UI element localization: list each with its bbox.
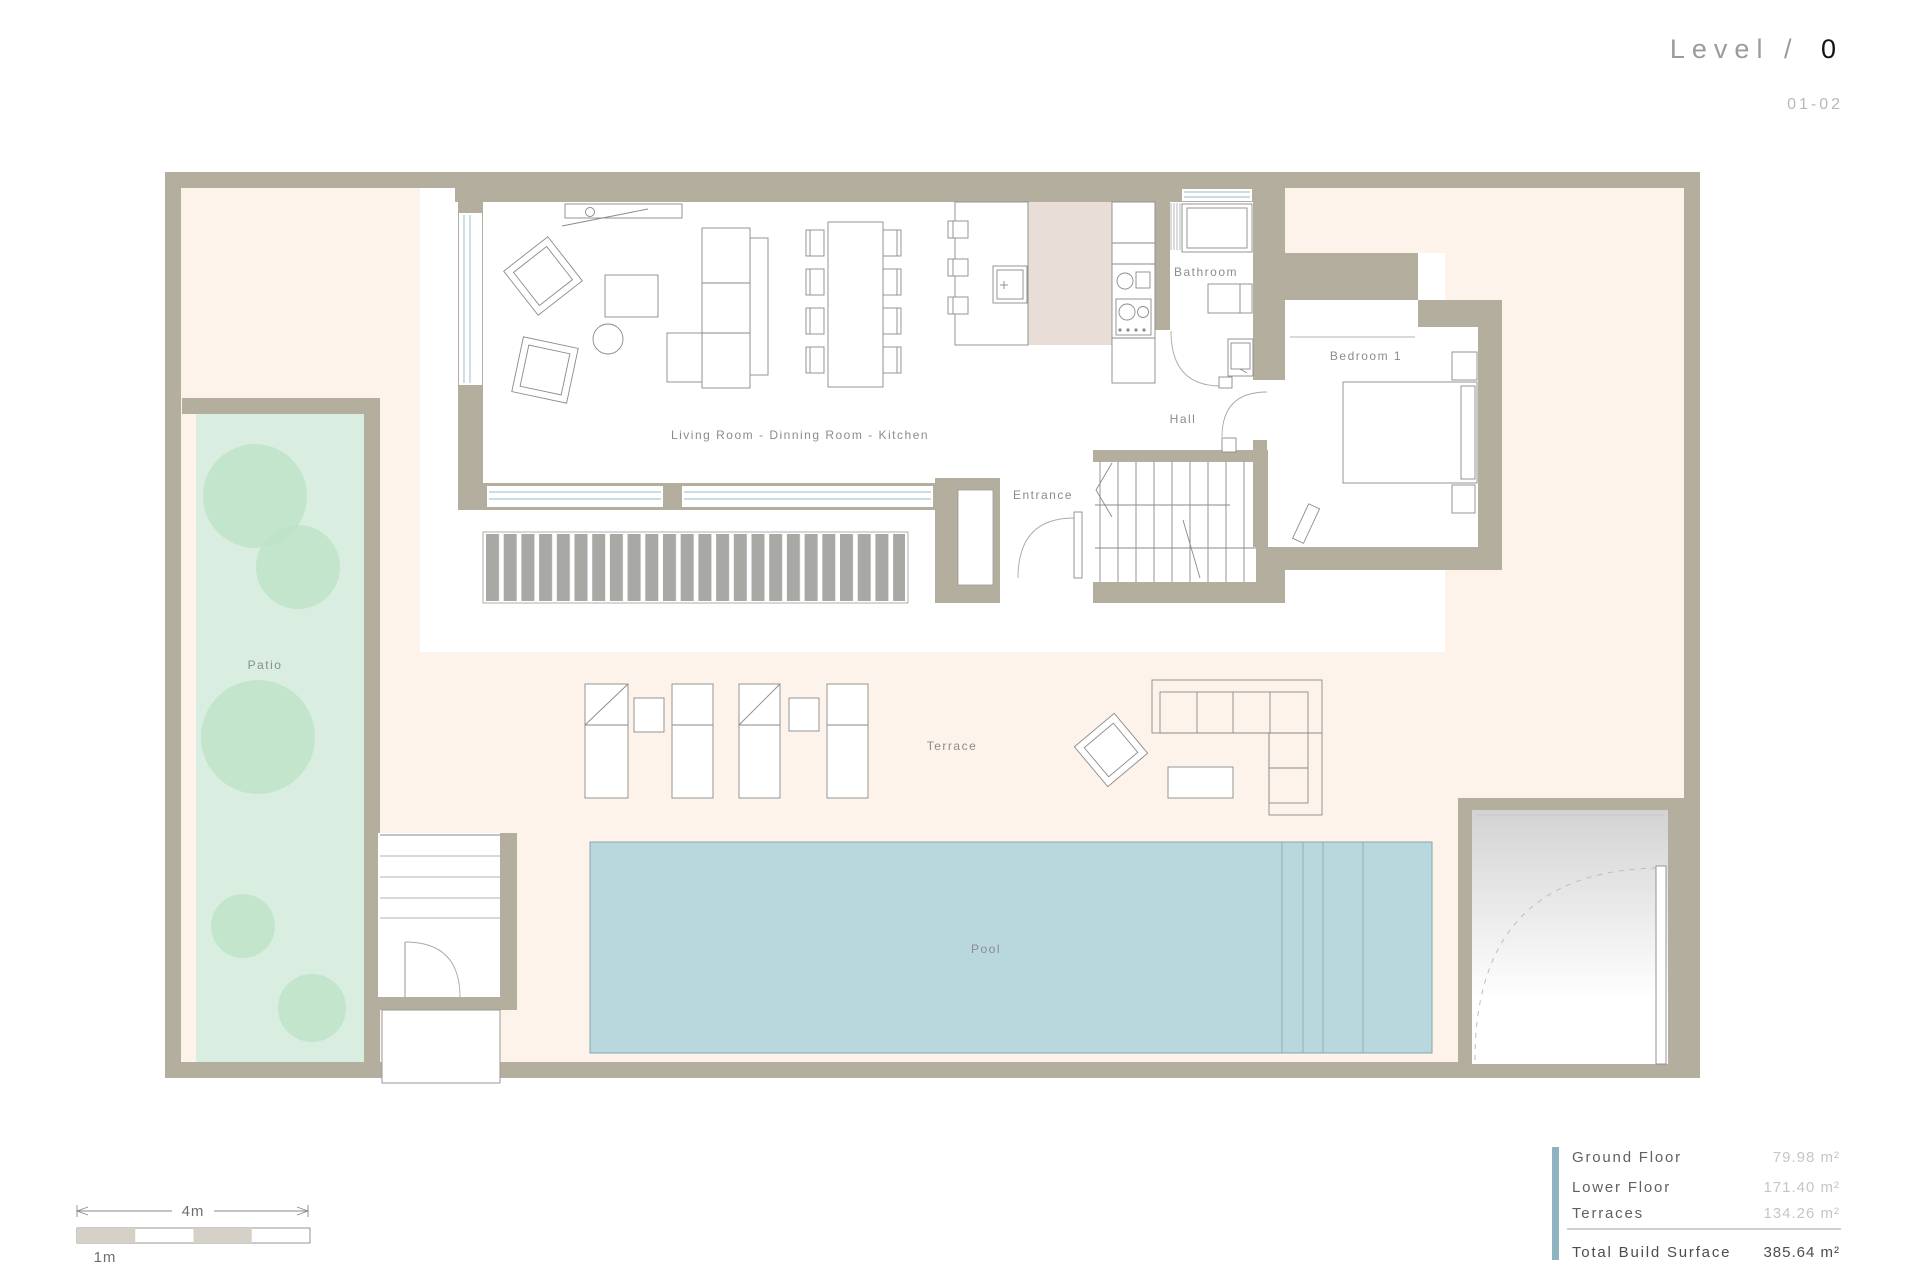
svg-text:Total Build Surface: Total Build Surface bbox=[1572, 1244, 1731, 1261]
label-entrance: Entrance bbox=[1013, 488, 1073, 502]
outdoor-coffee-table bbox=[1168, 767, 1233, 798]
title-prefix: Level / bbox=[1670, 34, 1799, 64]
title-level-number: 0 bbox=[1821, 34, 1843, 64]
svg-text:Ground Floor: Ground Floor bbox=[1572, 1149, 1682, 1166]
page-title: Level / 0 bbox=[1670, 34, 1843, 64]
patio-stairs bbox=[378, 833, 517, 1083]
label-patio: Patio bbox=[248, 658, 283, 672]
nightstand bbox=[1452, 485, 1475, 513]
svg-text:79.98 m²: 79.98 m² bbox=[1773, 1149, 1840, 1166]
lower-access-room bbox=[382, 1010, 500, 1083]
title-block: Level / 0 01-02 bbox=[1670, 34, 1843, 113]
scale-bar: 4m 1m bbox=[77, 1203, 310, 1266]
label-living-room: Living Room - Dinning Room - Kitchen bbox=[671, 428, 929, 442]
bed-icon bbox=[1343, 382, 1477, 483]
floor-plan-page: { "title": { "prefix": "Level /", "numbe… bbox=[0, 0, 1920, 1280]
gate-leaf bbox=[1656, 866, 1666, 1064]
svg-text:171.40 m²: 171.40 m² bbox=[1763, 1179, 1840, 1196]
sun-lounger bbox=[585, 684, 628, 798]
svg-text:134.26 m²: 134.26 m² bbox=[1763, 1205, 1840, 1222]
scale-total-label: 4m bbox=[182, 1203, 205, 1220]
table-row: Lower Floor 171.40 m² bbox=[1572, 1179, 1840, 1196]
floor-plan-drawing: Living Room - Dinning Room - Kitchen Bat… bbox=[0, 0, 1920, 1280]
scale-unit-label: 1m bbox=[94, 1249, 117, 1266]
svg-text:Lower Floor: Lower Floor bbox=[1572, 1179, 1671, 1196]
label-bathroom: Bathroom bbox=[1174, 265, 1238, 279]
table-row: Ground Floor 79.98 m² bbox=[1572, 1149, 1840, 1166]
sun-lounger bbox=[827, 684, 868, 798]
table-total-row: Total Build Surface 385.64 m² bbox=[1572, 1244, 1840, 1261]
garage-area bbox=[1458, 798, 1684, 1078]
table-accent-bar bbox=[1552, 1147, 1559, 1260]
kitchen-island bbox=[948, 202, 1028, 345]
svg-text:Terraces: Terraces bbox=[1572, 1205, 1644, 1222]
armchair bbox=[512, 337, 578, 403]
pool-area bbox=[590, 842, 1432, 1053]
table-row: Terraces 134.26 m² bbox=[1572, 1205, 1840, 1222]
side-table bbox=[789, 698, 819, 731]
label-terrace: Terrace bbox=[927, 739, 978, 753]
sheet-code: 01-02 bbox=[1787, 96, 1843, 113]
kitchen-counter bbox=[1112, 202, 1155, 383]
sun-lounger bbox=[739, 684, 780, 798]
label-pool: Pool bbox=[971, 942, 1001, 956]
label-bedroom: Bedroom 1 bbox=[1330, 349, 1402, 363]
areas-table: Ground Floor 79.98 m² Lower Floor 171.40… bbox=[1552, 1147, 1841, 1261]
kitchen-floor bbox=[1028, 202, 1112, 345]
coffee-table bbox=[605, 275, 658, 317]
patio-area bbox=[182, 398, 380, 1064]
nightstand bbox=[1452, 352, 1477, 380]
deck-grill bbox=[483, 532, 908, 603]
sun-lounger bbox=[672, 684, 713, 798]
svg-text:385.64 m²: 385.64 m² bbox=[1763, 1244, 1840, 1261]
side-table bbox=[634, 698, 664, 732]
label-hall: Hall bbox=[1170, 412, 1197, 426]
